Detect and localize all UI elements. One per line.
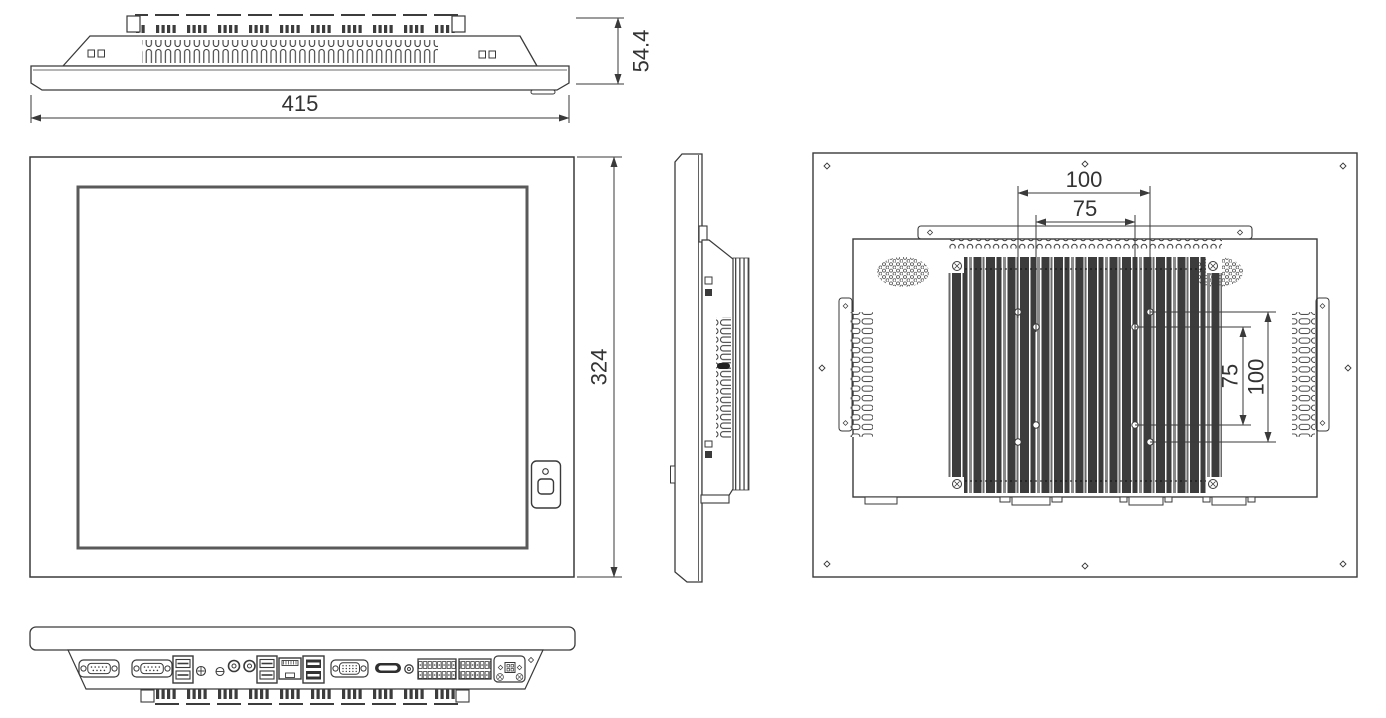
screw-2 — [216, 668, 224, 676]
back-view: 100 75 75 100 — [813, 153, 1357, 577]
port-vga — [331, 660, 368, 677]
dim-vesa-top-100-label: 100 — [1066, 167, 1103, 192]
vesa75-hole-bottom-left — [1033, 422, 1039, 428]
bottom-bezel-bar — [30, 627, 575, 650]
dim-width-label: 415 — [282, 91, 319, 116]
power-connector-box — [494, 656, 525, 682]
port-com1 — [79, 660, 119, 677]
back-vent-column-right — [1292, 312, 1315, 437]
terminal-block-1 — [418, 659, 456, 679]
dim-depth-label: 54.4 — [629, 30, 654, 73]
screen — [78, 187, 527, 548]
dim-vesa-top-75-label: 75 — [1073, 196, 1097, 221]
side-heatsink-fins — [733, 258, 749, 490]
port-com2 — [132, 660, 172, 677]
terminal-block-2 — [459, 659, 491, 679]
back-top-bracket — [918, 226, 1252, 239]
bottom-fin-bracket-right — [456, 690, 469, 702]
vesa100-hole-bottom-left — [1015, 439, 1021, 445]
side-vent-slots — [716, 317, 731, 438]
panel-pc-dimension-drawing: 54.4 415 324 — [0, 0, 1386, 718]
dc-jack — [405, 665, 413, 673]
back-top-scallop-vents — [948, 240, 1222, 249]
port-usb-stack-2 — [257, 656, 277, 683]
fin-end-bracket-right — [452, 16, 465, 32]
power-button — [538, 479, 554, 494]
dim-vesa-right-75-label: 75 — [1218, 364, 1243, 388]
side-power-button-profile — [671, 466, 676, 483]
power-led — [543, 469, 549, 475]
ground-screw — [197, 667, 206, 676]
dim-height-label: 324 — [587, 349, 612, 386]
dim-vesa-right-100-label: 100 — [1244, 359, 1269, 396]
audio-jack-1 — [229, 661, 240, 672]
top-bezel-bump — [531, 90, 555, 94]
technical-drawing-page: 54.4 415 324 — [0, 0, 1386, 718]
front-view — [30, 157, 574, 577]
side-vent-slot-dark — [717, 363, 730, 369]
port-lan — [279, 658, 301, 679]
side-bottom-bracket — [701, 495, 729, 503]
bottom-heatsink-fins — [150, 689, 460, 705]
bottom-fin-bracket-left — [141, 690, 154, 702]
fin-end-bracket-left — [127, 16, 140, 32]
port-usb-stack-1 — [173, 656, 193, 683]
back-vent-column-left — [850, 312, 873, 437]
top-heatsink-fins — [135, 14, 460, 33]
back-heatsink — [948, 257, 1222, 493]
top-vent-ovals — [142, 40, 438, 63]
port-usb-stack-3 — [303, 656, 324, 683]
side-front-panel — [675, 154, 702, 582]
port-hdmi — [375, 663, 401, 673]
speaker-grille-left — [877, 257, 929, 287]
power-button-panel — [532, 461, 561, 508]
audio-jack-2 — [244, 661, 255, 672]
